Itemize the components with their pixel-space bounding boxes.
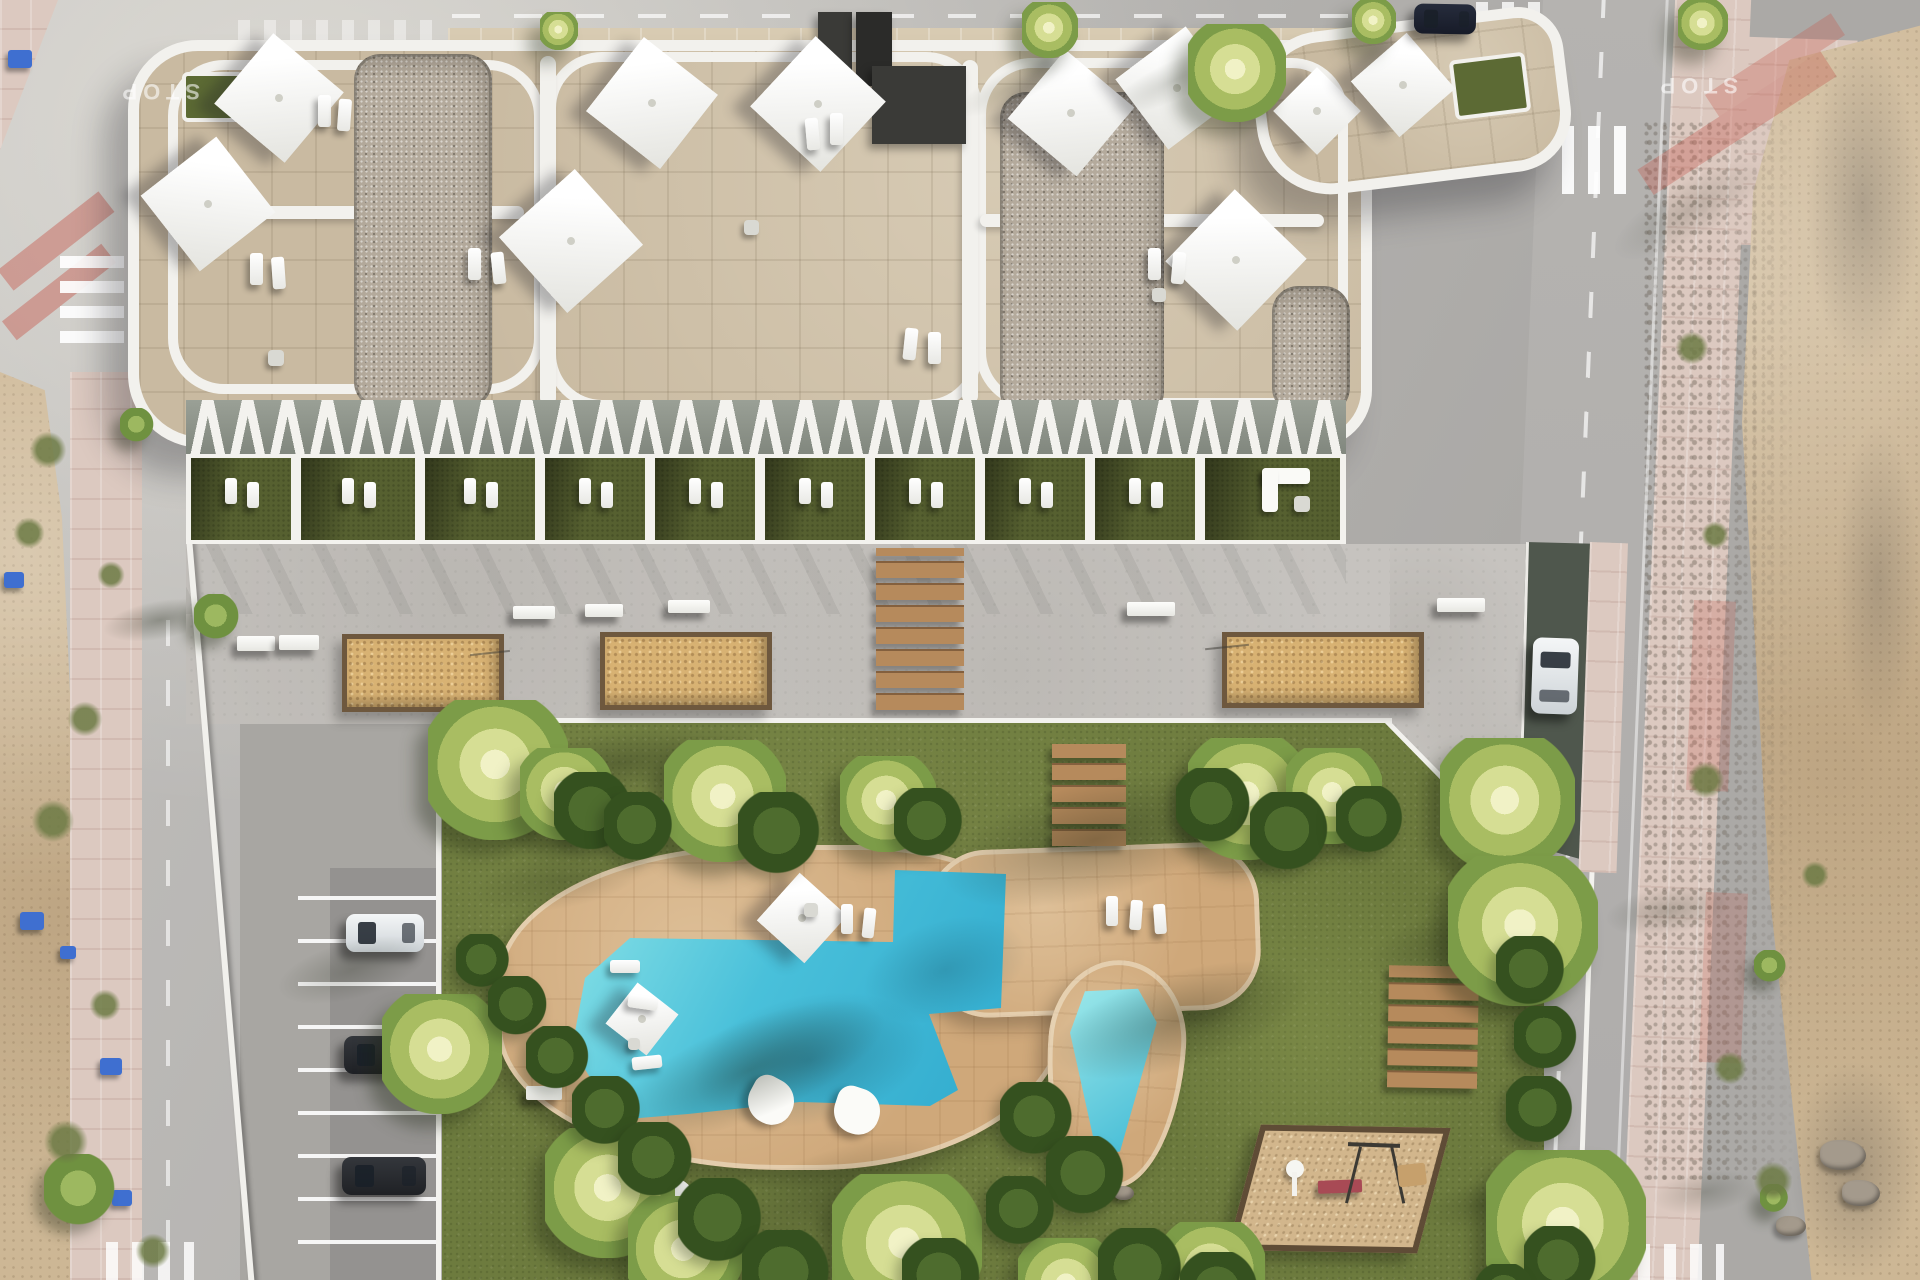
terrace-lounger-9a: [1129, 478, 1141, 504]
car-ramp-white: [1531, 637, 1580, 715]
bush-3: [738, 792, 824, 878]
roof-gravel-1: [354, 54, 492, 408]
roof-gravel-3: [1272, 286, 1350, 414]
roof-table-1: [268, 350, 284, 366]
corner-sidewalk-nw: [0, 0, 58, 150]
hedge-right-3: [1506, 1076, 1576, 1146]
terrace-lounger-6a: [799, 478, 811, 504]
pergola-band: [186, 400, 1346, 458]
scrub-2: [12, 516, 46, 550]
dirt-shade-top-right: [1806, 40, 1920, 370]
pool-lounger-1: [841, 904, 853, 934]
promenade-bench-6: [1127, 602, 1175, 616]
lane-dash-left-road: [166, 620, 170, 1260]
pool-lounger-6: [610, 960, 640, 973]
bush-kidspool-3: [986, 1176, 1058, 1248]
promenade-bench-3: [513, 606, 555, 619]
roof-table-3: [1152, 288, 1166, 302]
stop-marking-right: STOP: [1618, 72, 1738, 96]
roof-lounger-4: [830, 113, 843, 145]
scrub-7: [134, 1232, 172, 1270]
terrace-lounger-2a: [342, 478, 354, 504]
terrace-lounger-8a: [1019, 478, 1031, 504]
hedge-7: [742, 1230, 834, 1280]
terrace-garden-3: [425, 458, 535, 540]
terrace-lounger-3a: [464, 478, 476, 504]
scrub-5: [88, 988, 122, 1022]
roof-lounger-8: [271, 257, 286, 290]
crossing-side-street-left: [60, 256, 124, 354]
pool-lounger-5: [1153, 904, 1167, 935]
pool-lounger-3: [1106, 896, 1118, 926]
terrace-lounger-8b: [1041, 482, 1053, 508]
promenade-bench-5: [668, 600, 710, 613]
promenade-planter-3: [1222, 632, 1424, 708]
garden-palm-7: [1440, 738, 1575, 873]
promenade-bench-7: [1437, 598, 1485, 612]
terrace-lounger-7b: [931, 482, 943, 508]
stop-marking-left: STOP: [80, 78, 200, 102]
roof-lounger-2: [337, 99, 352, 132]
terrace-sofa-side: [1262, 468, 1278, 512]
playground-bench-red: [1318, 1179, 1362, 1194]
terrace-sofa-table: [1294, 496, 1310, 512]
terrace-garden-8: [985, 458, 1085, 540]
terrace-lounger-5b: [711, 482, 723, 508]
hedge-right-5: [1476, 1264, 1538, 1280]
roof-lounger-6: [928, 332, 941, 364]
rock-5: [1820, 1140, 1866, 1170]
terrace-lounger-5a: [689, 478, 701, 504]
terrace-lounger-1a: [225, 478, 237, 504]
pool-lounger-4: [1129, 900, 1143, 931]
promenade-bench-1: [237, 636, 275, 651]
bush-bottom-2: [1098, 1228, 1186, 1280]
pool-table-2: [628, 1038, 640, 1050]
roof-lounger-10: [1171, 251, 1187, 284]
bush-2: [604, 792, 676, 864]
street-palm-1: [1022, 2, 1078, 58]
street-tree-1: [194, 594, 242, 642]
bin-2: [4, 572, 24, 588]
street-tree-3: [1754, 950, 1788, 984]
terrace-lounger-6b: [821, 482, 833, 508]
wood-steps-promenade: [876, 548, 964, 710]
terrace-garden-9: [1095, 458, 1195, 540]
car-top-road: [1414, 3, 1477, 34]
scrub-r3: [1686, 760, 1726, 800]
parking-palm: [382, 994, 502, 1114]
terrace-lounger-4a: [579, 478, 591, 504]
scrub-r1: [1674, 330, 1710, 366]
bush-7: [1336, 786, 1406, 856]
terrace-lounger-4b: [601, 482, 613, 508]
bin-1: [8, 50, 32, 68]
roof-lounger-7: [250, 253, 263, 285]
promenade-bench-4: [585, 604, 623, 617]
terrace-lounger-1b: [247, 482, 259, 508]
bush-bottom-3: [1180, 1252, 1262, 1280]
scrub-r2: [1700, 520, 1730, 550]
terrace-lounger-7a: [909, 478, 921, 504]
street-palm-5: [540, 12, 578, 50]
promenade-planter-2: [600, 632, 772, 710]
scrub-3: [66, 700, 104, 738]
terrace-lounger-9b: [1151, 482, 1163, 508]
terrace-garden-4: [545, 458, 645, 540]
roof-lounger-3: [805, 117, 821, 150]
street-palm-3: [1352, 0, 1396, 44]
pool-table-1: [804, 903, 818, 917]
bush-kidspool-2: [1046, 1136, 1128, 1218]
roof-lounger-9: [1148, 248, 1161, 280]
aerial-complex-render: STOPSTOP: [0, 0, 1920, 1280]
bush-4: [894, 788, 966, 860]
dirt-shade-bottom-right: [1788, 1060, 1920, 1280]
bin-3: [20, 912, 44, 930]
scrub-r5: [1752, 1160, 1794, 1202]
roof-lounger-11: [468, 248, 481, 280]
dirt-shade-mid-right: [1836, 420, 1920, 740]
bush-5: [1176, 768, 1254, 846]
hedge-right-2: [1514, 1006, 1580, 1072]
garden-fence-top: [440, 718, 1392, 723]
scrub-6: [42, 1118, 90, 1166]
scrub-8: [96, 560, 126, 590]
street-tree-5: [120, 408, 156, 444]
terrace-garden-1: [191, 458, 291, 540]
playground-mat: [1397, 1163, 1427, 1188]
rock-7: [1776, 1216, 1806, 1236]
bush-6: [1250, 792, 1332, 874]
street-palm-4: [1678, 0, 1728, 50]
terrace-lounger-2b: [364, 482, 376, 508]
roof-lounger-1: [318, 95, 331, 127]
scrub-r4: [1712, 1050, 1748, 1086]
terrace-garden-6: [765, 458, 865, 540]
bin-5: [100, 1058, 122, 1075]
terrace-garden-7: [875, 458, 975, 540]
bush-bottom-1: [902, 1238, 984, 1280]
car-parking-dark-2: [342, 1157, 426, 1195]
lane-dash-top-road: [452, 14, 1382, 18]
playground-table-leg: [1292, 1172, 1297, 1196]
hedge-right-1: [1496, 936, 1568, 1008]
bin-4: [60, 946, 76, 959]
roof-table-2: [744, 220, 759, 235]
rock-6: [1842, 1180, 1880, 1206]
terrace-garden-2: [301, 458, 415, 540]
promenade-bench-2: [279, 635, 319, 650]
terrace-garden-5: [655, 458, 755, 540]
scrub-1: [28, 430, 68, 470]
scrub-4: [30, 798, 76, 844]
terrace-lounger-3b: [486, 482, 498, 508]
scrub-r6: [1800, 860, 1830, 890]
roof-green-planter-2: [1449, 52, 1532, 121]
street-palm-2: [1188, 24, 1286, 122]
